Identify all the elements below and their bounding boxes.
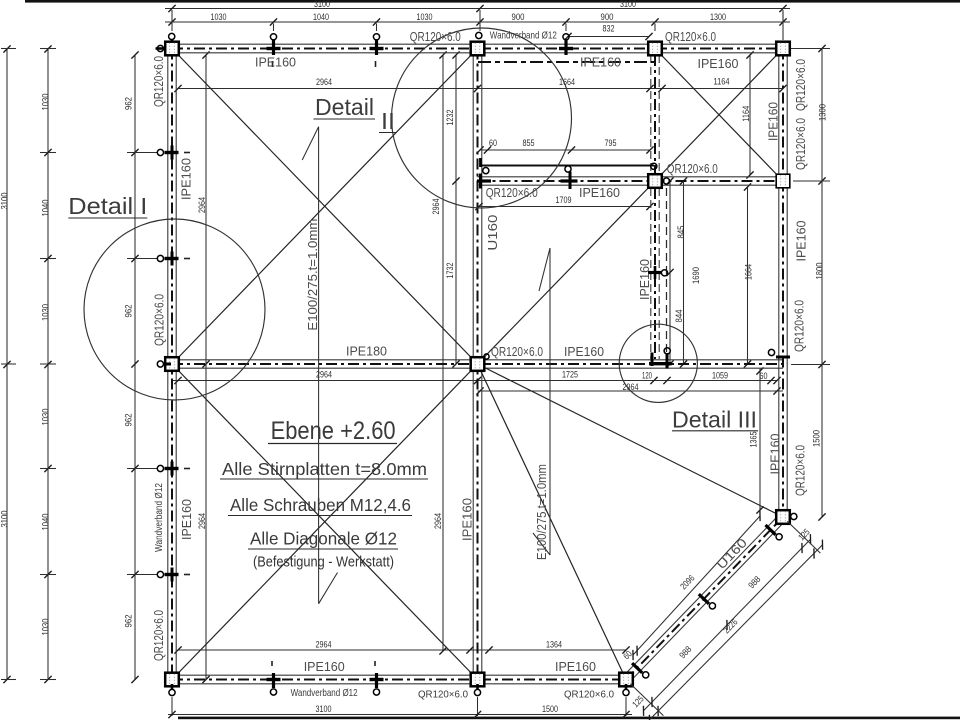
svg-text:(Befestigung - Werkstatt): (Befestigung - Werkstatt) [253, 554, 394, 571]
svg-text:QR120×6.0: QR120×6.0 [410, 29, 461, 44]
svg-text:3100: 3100 [314, 0, 330, 9]
svg-text:QR120×6.0: QR120×6.0 [564, 689, 614, 701]
svg-text:QR120×6.0: QR120×6.0 [665, 29, 716, 44]
svg-text:1664: 1664 [559, 77, 575, 87]
svg-text:962: 962 [124, 615, 134, 628]
svg-text:1709: 1709 [556, 195, 572, 205]
svg-text:1030: 1030 [41, 409, 51, 426]
svg-text:962: 962 [124, 97, 134, 110]
svg-text:2964: 2964 [316, 77, 332, 87]
svg-text:1040: 1040 [41, 514, 51, 531]
svg-text:IPE160: IPE160 [179, 158, 194, 200]
svg-text:900: 900 [601, 12, 614, 22]
svg-text:1800: 1800 [815, 263, 825, 280]
svg-text:120: 120 [642, 371, 652, 381]
svg-text:U160: U160 [485, 215, 500, 251]
svg-text:1030: 1030 [41, 94, 51, 111]
svg-text:IPE180: IPE180 [346, 344, 387, 359]
svg-text:QR120×6.0: QR120×6.0 [793, 118, 808, 170]
svg-text:IPE160: IPE160 [766, 102, 781, 141]
svg-text:60: 60 [760, 371, 768, 381]
svg-text:1300: 1300 [818, 104, 828, 121]
svg-text:855: 855 [523, 138, 535, 148]
svg-text:1030: 1030 [41, 619, 51, 636]
svg-text:1664: 1664 [744, 264, 754, 280]
svg-text:1030: 1030 [417, 12, 433, 22]
svg-text:QR120×6.0: QR120×6.0 [151, 610, 166, 661]
svg-text:1500: 1500 [812, 430, 822, 447]
svg-text:IPE160: IPE160 [579, 185, 620, 200]
svg-text:2964: 2964 [316, 640, 332, 650]
svg-text:IPE160: IPE160 [564, 344, 604, 359]
svg-text:Alle Stirnplatten t=8.0mm: Alle Stirnplatten t=8.0mm [222, 459, 427, 479]
svg-text:QR120×6.0: QR120×6.0 [792, 300, 807, 352]
svg-text:3100: 3100 [0, 193, 10, 210]
svg-text:IPE160: IPE160 [768, 434, 783, 475]
svg-text:962: 962 [124, 305, 134, 318]
svg-text:IPE160: IPE160 [794, 221, 809, 262]
svg-text:1500: 1500 [542, 704, 558, 714]
svg-text:Ebene +2.60: Ebene +2.60 [271, 417, 396, 445]
svg-text:Detail I: Detail I [68, 193, 147, 219]
svg-text:1030: 1030 [211, 12, 227, 22]
svg-text:60: 60 [489, 138, 497, 148]
svg-text:Detail: Detail [315, 94, 374, 120]
svg-text:IPE160: IPE160 [698, 56, 739, 71]
svg-text:900: 900 [512, 12, 525, 22]
svg-text:1725: 1725 [562, 370, 578, 380]
svg-text:II: II [381, 108, 395, 134]
svg-text:IPE160: IPE160 [555, 659, 596, 674]
svg-text:Wandverband Ø12: Wandverband Ø12 [291, 687, 358, 699]
svg-text:1040: 1040 [313, 12, 329, 22]
svg-text:E100/275.t=1.0mm: E100/275.t=1.0mm [306, 219, 320, 331]
svg-text:3100: 3100 [620, 0, 636, 9]
svg-text:QR120×6.0: QR120×6.0 [151, 56, 166, 107]
svg-text:3100: 3100 [0, 511, 10, 528]
svg-text:Detail III: Detail III [672, 407, 757, 433]
svg-text:Wandverband Ø12: Wandverband Ø12 [490, 30, 557, 42]
svg-text:QR120×6.0: QR120×6.0 [793, 59, 808, 111]
svg-text:IPE160: IPE160 [460, 498, 475, 541]
svg-text:2964: 2964 [433, 513, 443, 529]
svg-text:QR120×6.0: QR120×6.0 [667, 161, 718, 176]
svg-text:QR120×6.0: QR120×6.0 [152, 294, 167, 346]
svg-text:3100: 3100 [316, 704, 332, 714]
svg-text:Alle Schrauben M12,4.6: Alle Schrauben M12,4.6 [230, 495, 411, 515]
svg-text:QR120×6.0: QR120×6.0 [418, 689, 468, 701]
svg-text:IPE160: IPE160 [637, 259, 652, 300]
svg-text:1365: 1365 [749, 432, 759, 448]
svg-text:IPE160: IPE160 [580, 55, 621, 70]
svg-text:1690: 1690 [691, 267, 701, 284]
svg-text:QR120×6.0: QR120×6.0 [486, 185, 538, 200]
svg-text:1364: 1364 [546, 640, 562, 650]
svg-text:962: 962 [124, 414, 134, 427]
svg-text:IPE160: IPE160 [255, 55, 296, 70]
svg-text:QR120×6.0: QR120×6.0 [491, 344, 543, 359]
svg-text:2964: 2964 [431, 199, 441, 215]
svg-text:1300: 1300 [710, 12, 726, 22]
svg-text:1059: 1059 [712, 371, 728, 381]
svg-text:1030: 1030 [41, 304, 51, 321]
svg-text:844: 844 [674, 310, 684, 323]
svg-text:1040: 1040 [41, 200, 51, 217]
svg-text:E100/275.t=1.0mm: E100/275.t=1.0mm [535, 464, 549, 560]
svg-text:IPE160: IPE160 [179, 499, 194, 540]
svg-text:2964: 2964 [197, 197, 207, 213]
svg-text:QR120×6.0: QR120×6.0 [793, 445, 808, 496]
svg-text:845: 845 [676, 226, 686, 239]
svg-text:1732: 1732 [445, 263, 455, 279]
svg-text:795: 795 [605, 138, 617, 148]
svg-text:Wandverband Ø12: Wandverband Ø12 [153, 483, 165, 552]
svg-text:2964: 2964 [197, 513, 207, 529]
svg-text:1164: 1164 [741, 106, 751, 122]
svg-text:IPE160: IPE160 [304, 659, 345, 674]
svg-text:832: 832 [603, 24, 615, 34]
svg-text:Alle Diagonale Ø12: Alle Diagonale Ø12 [250, 529, 397, 549]
svg-text:1164: 1164 [714, 77, 730, 87]
svg-text:1232: 1232 [445, 110, 455, 126]
